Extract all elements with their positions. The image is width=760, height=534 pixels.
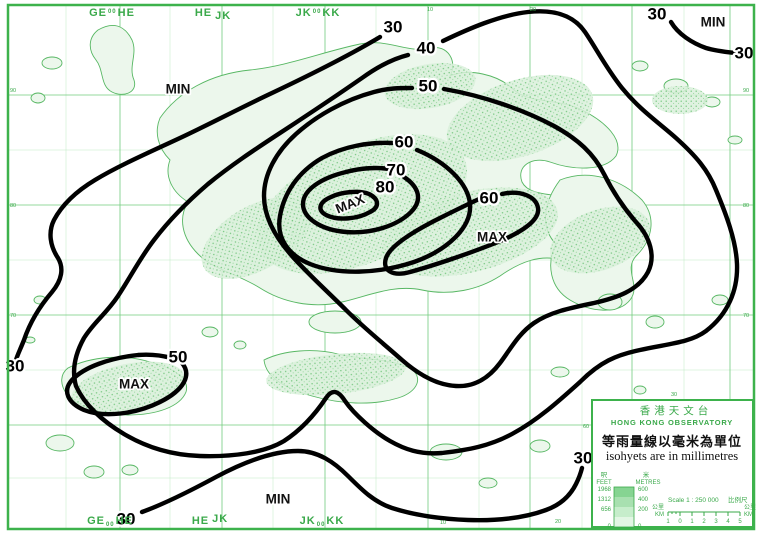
scale-text: Scale 1 : 250 000 bbox=[668, 497, 719, 504]
min-northwest-label: MIN bbox=[166, 82, 191, 97]
legend-org-en: HONG KONG OBSERVATORY bbox=[611, 418, 733, 427]
label-60-center: 60 bbox=[395, 133, 414, 152]
max-southwest-label: MAX bbox=[119, 377, 149, 392]
metres-400: 400 bbox=[638, 497, 649, 503]
min-northeast-label: MIN bbox=[701, 15, 726, 30]
edge-left-90: 90 bbox=[10, 88, 16, 94]
elevation-band-200 bbox=[614, 507, 634, 517]
edge-above-legend-30: 30 bbox=[671, 392, 677, 398]
label-30-west: 30 bbox=[384, 18, 403, 37]
elevation-band-400 bbox=[614, 497, 634, 507]
zone-label-bottom-1: GE00HE bbox=[87, 515, 133, 528]
elevation-feet-zh: 呎 bbox=[601, 471, 608, 479]
feet-1312: 1312 bbox=[598, 497, 612, 503]
northwest-peninsula bbox=[90, 25, 134, 94]
label-30-topright-a: 30 bbox=[648, 5, 667, 24]
max-east-label: MAX bbox=[477, 230, 507, 245]
metres-200: 200 bbox=[638, 507, 649, 513]
feet-1968: 1968 bbox=[598, 487, 612, 493]
isohyet-map: 30 40 50 60 70 80 60 50 30 30 30 30 30 M… bbox=[0, 0, 760, 534]
elevation-band-600 bbox=[614, 487, 634, 497]
label-60-east: 60 bbox=[480, 189, 499, 208]
label-40: 40 bbox=[417, 39, 436, 58]
min-south-label: MIN bbox=[266, 492, 291, 507]
elevation-metres-zh: 米 bbox=[643, 470, 650, 479]
edge-right-90: 90 bbox=[743, 88, 749, 94]
legend-caption-en: isohyets are in millimetres bbox=[606, 449, 738, 463]
label-30-topright-b: 30 bbox=[735, 44, 754, 63]
elevation-metres-en: METRES bbox=[635, 480, 660, 486]
zone-label-bottom-3: JK00KK bbox=[300, 515, 345, 528]
zone-label-bottom-2: HEJK bbox=[192, 513, 228, 527]
edge-left-of-legend-60: 60 bbox=[583, 424, 589, 430]
isohyet-30-bottom bbox=[142, 451, 582, 520]
edge-right-70: 70 bbox=[743, 313, 749, 319]
edge-left-80: 80 bbox=[10, 203, 16, 209]
metres-600: 600 bbox=[638, 487, 649, 493]
elevation-band-0 bbox=[614, 517, 634, 527]
feet-656: 656 bbox=[601, 507, 612, 513]
label-80-center: 80 bbox=[376, 178, 395, 197]
label-50-southwest: 50 bbox=[169, 348, 188, 367]
edge-top-10: 10 bbox=[427, 7, 433, 13]
zone-label-top-1: GE00HE bbox=[89, 7, 135, 19]
isohyet-map-page: 30 40 50 60 70 80 60 50 30 30 30 30 30 M… bbox=[0, 0, 760, 534]
edge-top-20: 20 bbox=[530, 7, 536, 13]
edge-bottom-10: 10 bbox=[440, 520, 446, 526]
edge-left-70: 70 bbox=[10, 313, 16, 319]
legend-caption-zh: 等雨量線以毫米為單位 bbox=[601, 434, 742, 449]
zone-label-top-3: JK00KK bbox=[296, 7, 341, 19]
scale-km-left-zh: 公里 bbox=[652, 504, 664, 511]
label-50: 50 bbox=[419, 77, 438, 96]
elevation-feet-en: FEET bbox=[596, 480, 612, 486]
legend-box: 香港天文台 HONG KONG OBSERVATORY 等雨量線以毫米為單位 i… bbox=[592, 400, 756, 530]
scale-text-zh: 比例尺 bbox=[728, 495, 748, 504]
scale-km-left-en: KM bbox=[655, 512, 664, 518]
edge-right-80: 80 bbox=[743, 203, 749, 209]
zone-label-top-2: HEJK bbox=[195, 7, 231, 22]
edge-bottom-20: 20 bbox=[555, 519, 561, 525]
scale-km-right-en: KM bbox=[744, 512, 753, 518]
legend-org-zh: 香港天文台 bbox=[640, 404, 713, 417]
label-30-bottom-right: 30 bbox=[574, 449, 593, 468]
